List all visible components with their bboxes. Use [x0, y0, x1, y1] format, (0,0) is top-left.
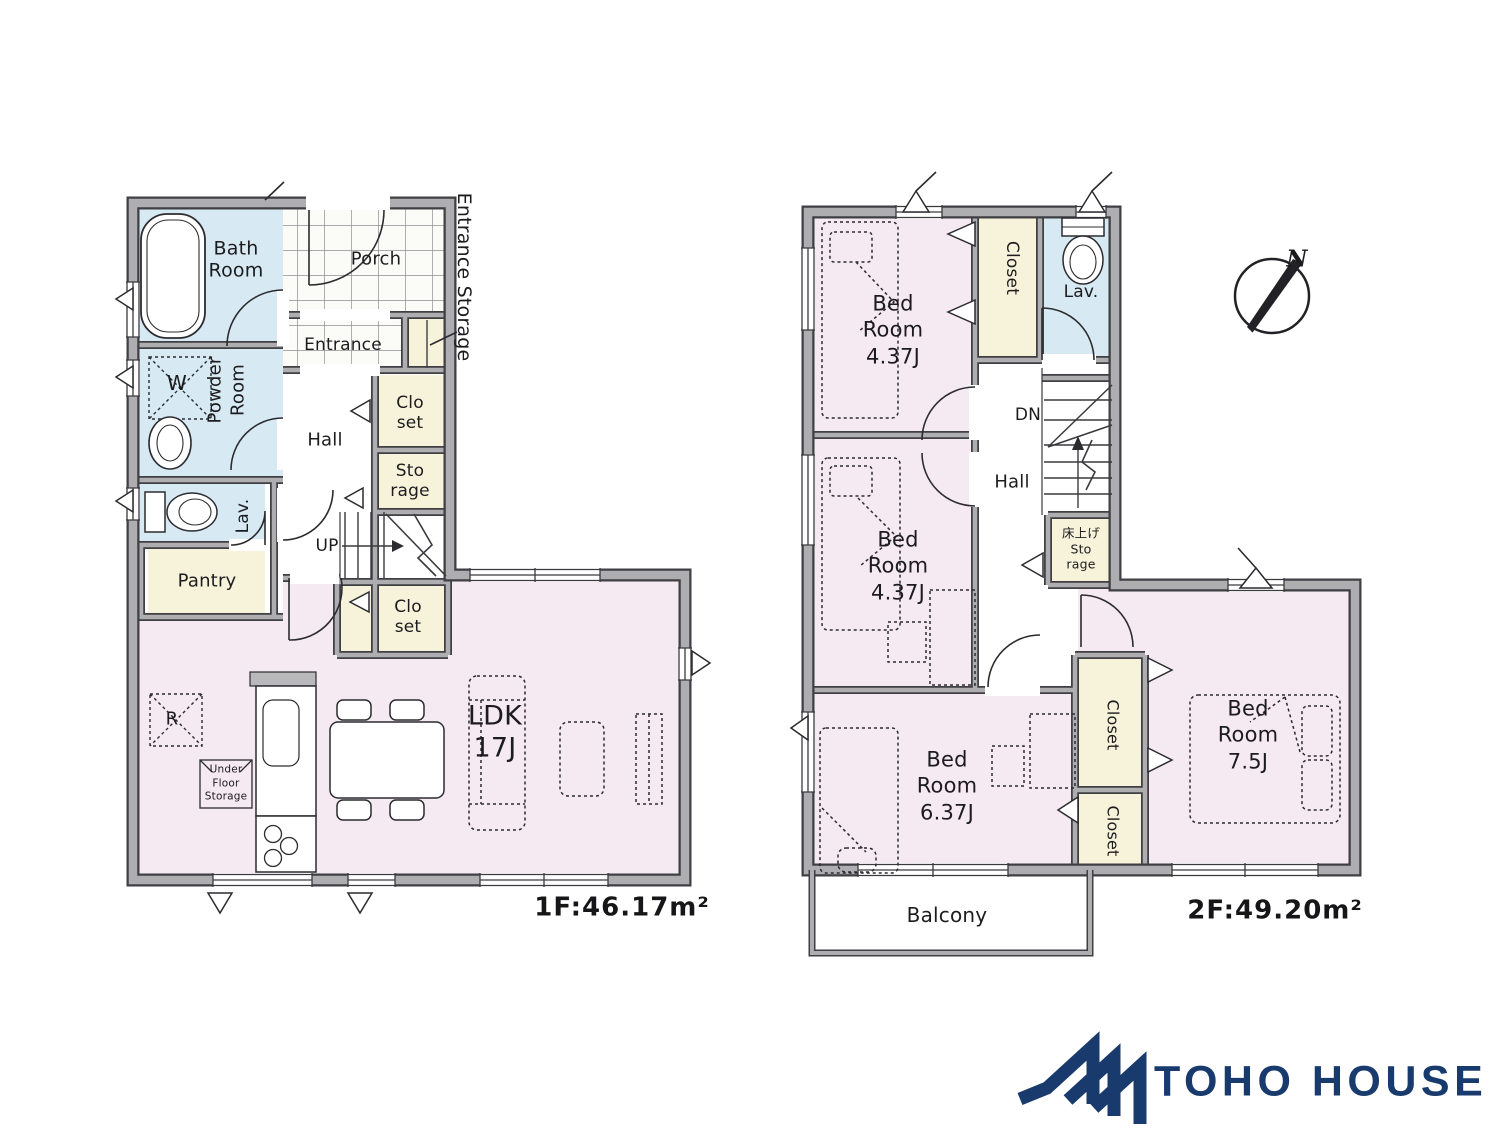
room-label-closet-lower: Clo set: [394, 597, 422, 637]
kitchen-counter-icon: [250, 672, 316, 872]
room-label-hall-2f: Hall: [994, 471, 1029, 492]
room-label-powder: Powder Room: [205, 356, 250, 423]
room-label-closet-upper: Clo set: [396, 393, 424, 433]
stairs-down-label: DN: [1015, 405, 1041, 425]
floor2-area-label: 2F:49.20m²: [1187, 896, 1363, 927]
room-label-closet-right-upper: Closet: [1103, 699, 1122, 750]
under-floor-storage-label: Under Floor Storage: [205, 764, 247, 805]
compass-north-label: N: [1286, 245, 1307, 272]
room-label-bath: Bath Room: [209, 238, 264, 283]
brand-house-icon: [1020, 1046, 1140, 1124]
washer-label: W: [167, 372, 187, 396]
room-label-lav-2f: Lav.: [1064, 282, 1099, 302]
room-label-pantry: Pantry: [178, 570, 237, 591]
floor-plan-page: Bath Room Porch Entrance Storage Entranc…: [0, 0, 1512, 1134]
stairs-up-label: UP: [315, 536, 338, 556]
room-label-porch: Porch: [351, 248, 402, 269]
floor1-area-label: 1F:46.17m²: [534, 893, 710, 924]
room-label-hall-1f: Hall: [307, 429, 342, 450]
room-label-ldk: LDK 17J: [468, 701, 522, 766]
room-label-closet-right-lower: Closet: [1103, 805, 1122, 856]
room-label-bedroom3: Bed Room 6.37J: [917, 747, 978, 826]
brand-name: TOHO HOUSE: [1154, 1058, 1487, 1107]
powder-sink-icon: [149, 417, 191, 469]
toilet-icon-2f: [1062, 218, 1104, 284]
room-label-entrance: Entrance: [304, 335, 382, 355]
room-label-storage-1f: Sto rage: [390, 461, 429, 501]
room-label-bedroom1: Bed Room 4.37J: [863, 291, 924, 370]
bathtub-icon: [141, 214, 205, 338]
room-label-raised-storage: 床上げ Sto rage: [1062, 526, 1100, 573]
room-label-bedroom4: Bed Room 7.5J: [1218, 696, 1279, 775]
fridge-label: R: [166, 708, 179, 729]
room-label-bedroom2: Bed Room 4.37J: [868, 527, 929, 606]
floor-plan-graphics: [0, 0, 1512, 1134]
room-label-entrance-storage: Entrance Storage: [453, 193, 475, 362]
room-label-balcony: Balcony: [907, 904, 988, 928]
room-label-closet-top: Closet: [1002, 241, 1022, 295]
room-label-lav-1f: Lav.: [233, 499, 253, 534]
toilet-icon-1f: [145, 492, 217, 532]
